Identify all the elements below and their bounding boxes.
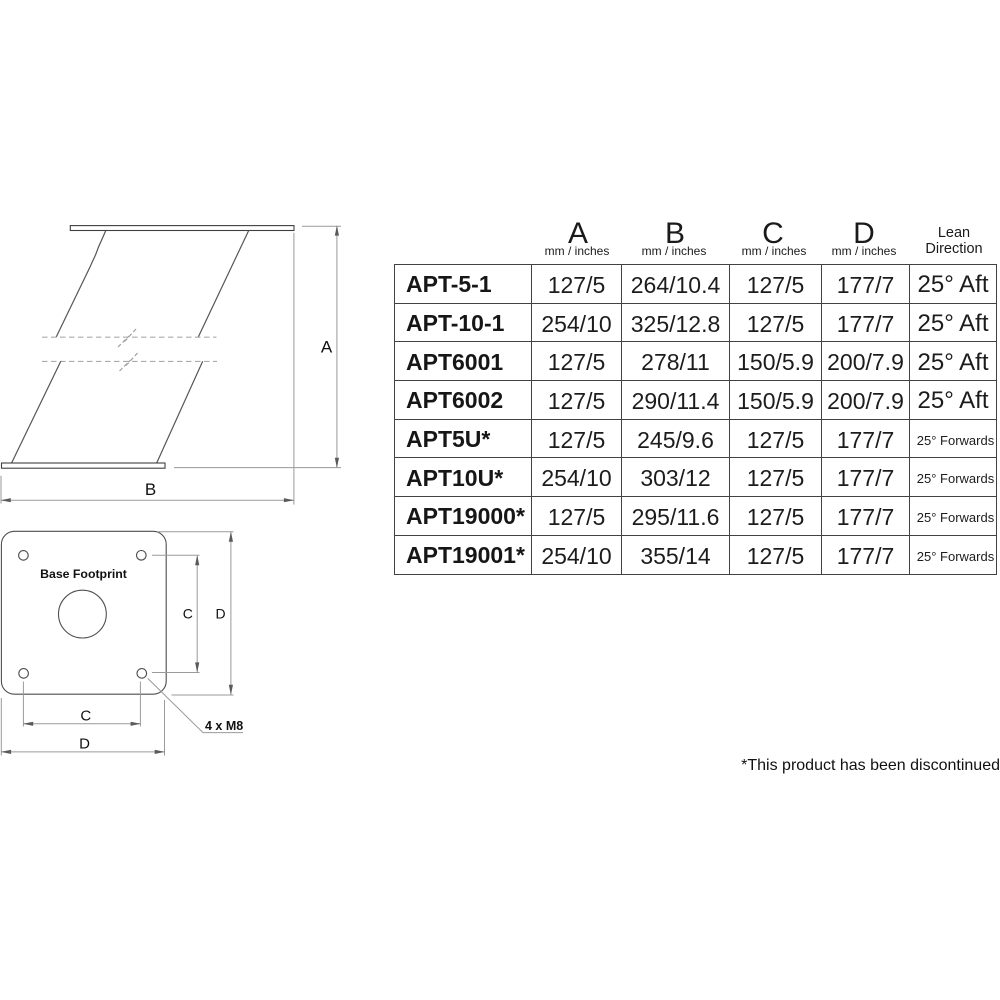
svg-text:B: B [145,480,156,499]
svg-text:A: A [321,337,333,356]
svg-text:D: D [215,606,225,622]
svg-text:Base Footprint: Base Footprint [40,567,127,581]
svg-text:4 x M8: 4 x M8 [205,719,243,733]
svg-text:C: C [183,606,193,622]
svg-text:C: C [80,708,91,725]
svg-text:D: D [79,736,90,753]
